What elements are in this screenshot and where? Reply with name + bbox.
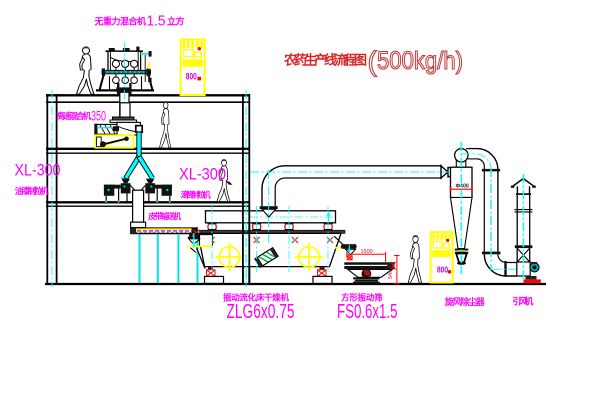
svg-text:1.5: 1.5 <box>147 13 166 30</box>
svg-text:XL-300: XL-300 <box>179 165 226 184</box>
svg-text:农药生产线流程图: 农药生产线流程图 <box>283 53 367 68</box>
svg-text:800: 800 <box>437 265 448 275</box>
svg-text:(: ( <box>368 46 378 77</box>
svg-text:Φ400: Φ400 <box>456 184 469 190</box>
svg-text:1500: 1500 <box>361 249 373 255</box>
svg-text:500kg/h): 500kg/h) <box>377 47 463 75</box>
svg-text:350: 350 <box>91 109 106 124</box>
svg-text:ZLG6x0.75: ZLG6x0.75 <box>227 301 295 323</box>
svg-text:旋风除尘器: 旋风除尘器 <box>444 296 486 307</box>
svg-text:无重力混合机: 无重力混合机 <box>94 16 147 27</box>
svg-text:800: 800 <box>186 72 197 82</box>
svg-text:皮带输送机: 皮带输送机 <box>147 211 181 221</box>
svg-text:立方: 立方 <box>167 16 185 27</box>
svg-text:油漆制粒机: 油漆制粒机 <box>15 186 49 196</box>
svg-text:FS0.6x1.5: FS0.6x1.5 <box>337 301 398 323</box>
svg-text:引风机: 引风机 <box>512 295 533 306</box>
svg-text:高速混合机: 高速混合机 <box>56 111 91 121</box>
svg-text:滚筒制粒机: 滚筒制粒机 <box>181 190 211 200</box>
svg-text:XL-300: XL-300 <box>15 160 61 179</box>
